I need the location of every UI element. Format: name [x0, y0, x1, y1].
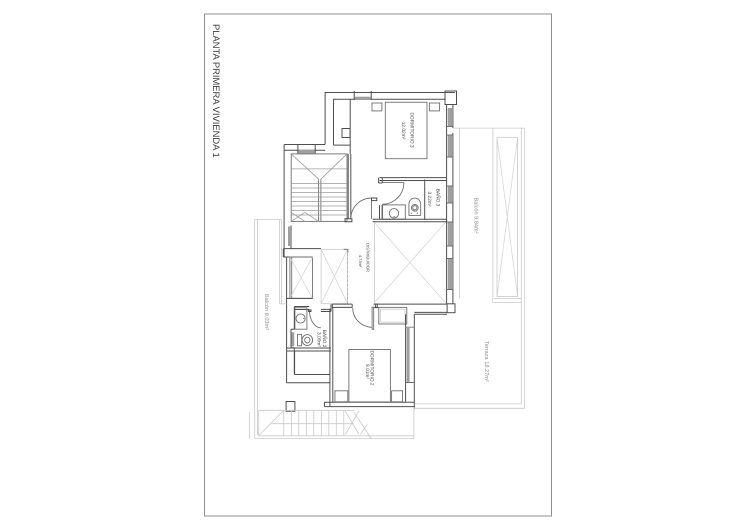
svg-text:BAÑO.3: BAÑO.3 [435, 189, 442, 207]
svg-text:12.02m²: 12.02m² [400, 122, 406, 140]
svg-text:3.22m²: 3.22m² [426, 192, 432, 207]
svg-text:4.73m²: 4.73m² [358, 255, 363, 268]
svg-text:PLANTA PRIMERA VIVIENDA 1: PLANTA PRIMERA VIVIENDA 1 [211, 24, 222, 158]
svg-text:3.00m²: 3.00m² [316, 332, 322, 347]
svg-text:BAÑO.2: BAÑO.2 [321, 330, 328, 348]
svg-text:9.01m²: 9.01m² [364, 364, 370, 379]
svg-text:DORMITORIO.3: DORMITORIO.3 [409, 112, 415, 147]
svg-text:DISTRIBUIDOR: DISTRIBUIDOR [366, 243, 371, 272]
svg-text:Balcón 8.03m²: Balcón 8.03m² [263, 294, 270, 330]
svg-text:Balcón 9.84m²: Balcón 9.84m² [473, 198, 480, 234]
svg-text:Terraza 18.27m²: Terraza 18.27m² [483, 341, 489, 382]
